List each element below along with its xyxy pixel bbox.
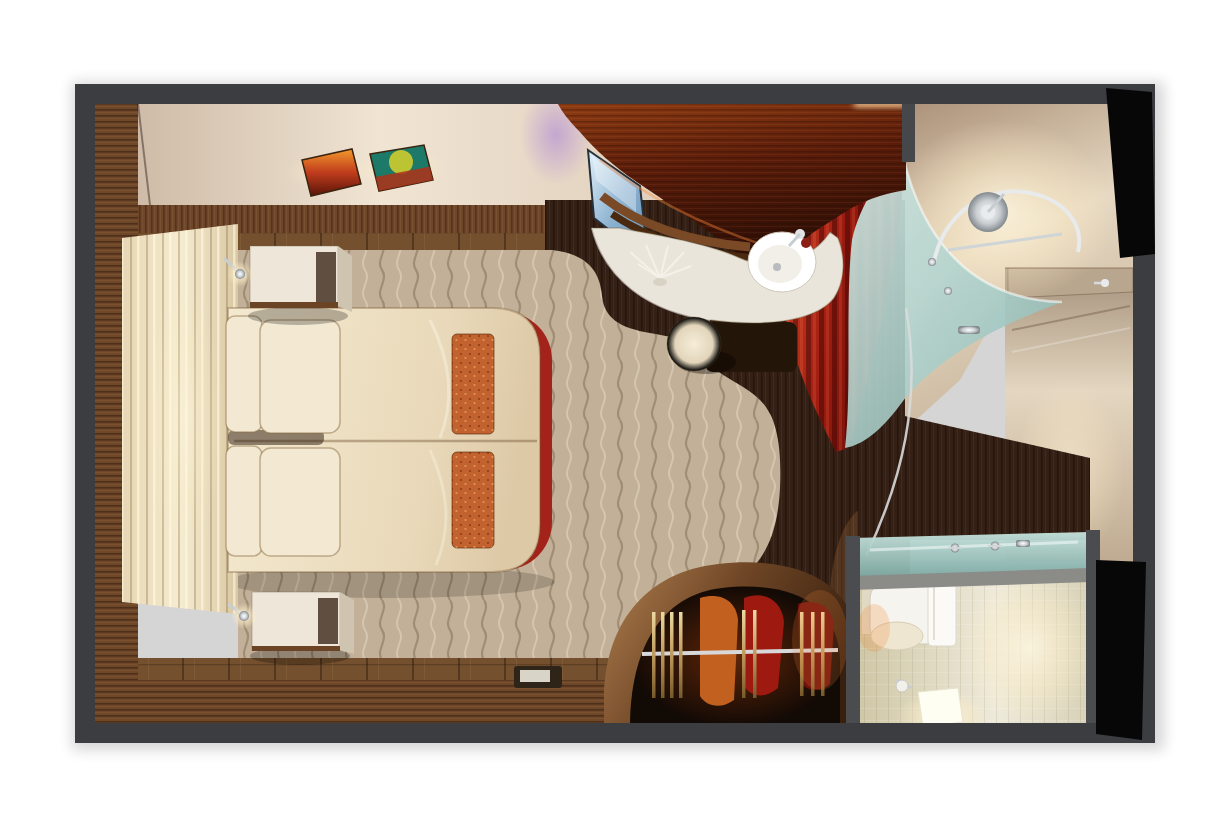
washbasin-drain (773, 263, 781, 271)
cabin-render (0, 0, 1227, 818)
wall-left (75, 84, 95, 743)
tray-card (520, 670, 550, 682)
stool-seat (667, 317, 721, 371)
pillow-back-bottom (226, 446, 262, 556)
wardrobe-warm-glow (792, 590, 848, 690)
nightstand-bottom-base (252, 646, 340, 651)
tp-roll (896, 680, 908, 692)
washbasin-bowl (758, 245, 802, 283)
wall-top (75, 84, 1155, 104)
doorway-dark-bottom (1096, 560, 1146, 740)
headboard-glow (145, 290, 225, 550)
toilet-room (846, 530, 1100, 742)
bed-runner-bottom-texture (452, 452, 494, 548)
cabin-floorplan-svg (0, 0, 1227, 818)
towel (928, 580, 956, 646)
pillow-front-bottom (260, 448, 340, 556)
nightstand-bottom-side (340, 592, 354, 654)
pillow-back-top (226, 316, 262, 432)
entry-door-handle (1101, 279, 1109, 287)
wall-bottom (75, 723, 1155, 743)
nightstand-top-base (250, 302, 338, 308)
nightstand-bottom-opening (318, 598, 338, 644)
bed-runner-top-texture (452, 334, 494, 434)
double-bed (226, 308, 552, 572)
headboard-panel (122, 224, 238, 614)
wc-wall-glow (960, 573, 1100, 723)
divider-canopy-shower (902, 104, 915, 162)
wc-left-wall (846, 536, 860, 736)
nightstand-top-shadow (248, 307, 348, 325)
glass-clip-2 (944, 287, 952, 295)
lamp-bottom-head (239, 611, 249, 621)
toilet-warm-glow (858, 604, 890, 652)
lamp-top-head (235, 269, 245, 279)
floor-tray (514, 666, 562, 688)
flower-red (801, 238, 811, 248)
nightstand-bottom (250, 592, 354, 665)
glowing-light-cube (918, 688, 963, 727)
garment-red (744, 595, 784, 695)
glass-hook (958, 326, 980, 334)
flower-vase (653, 278, 667, 286)
glass-clip-1 (928, 258, 936, 266)
nightstand-top-side (338, 246, 352, 312)
nightstand-top-opening (316, 252, 336, 302)
pillow-front-top (260, 320, 340, 433)
nightstand-top (248, 246, 352, 325)
